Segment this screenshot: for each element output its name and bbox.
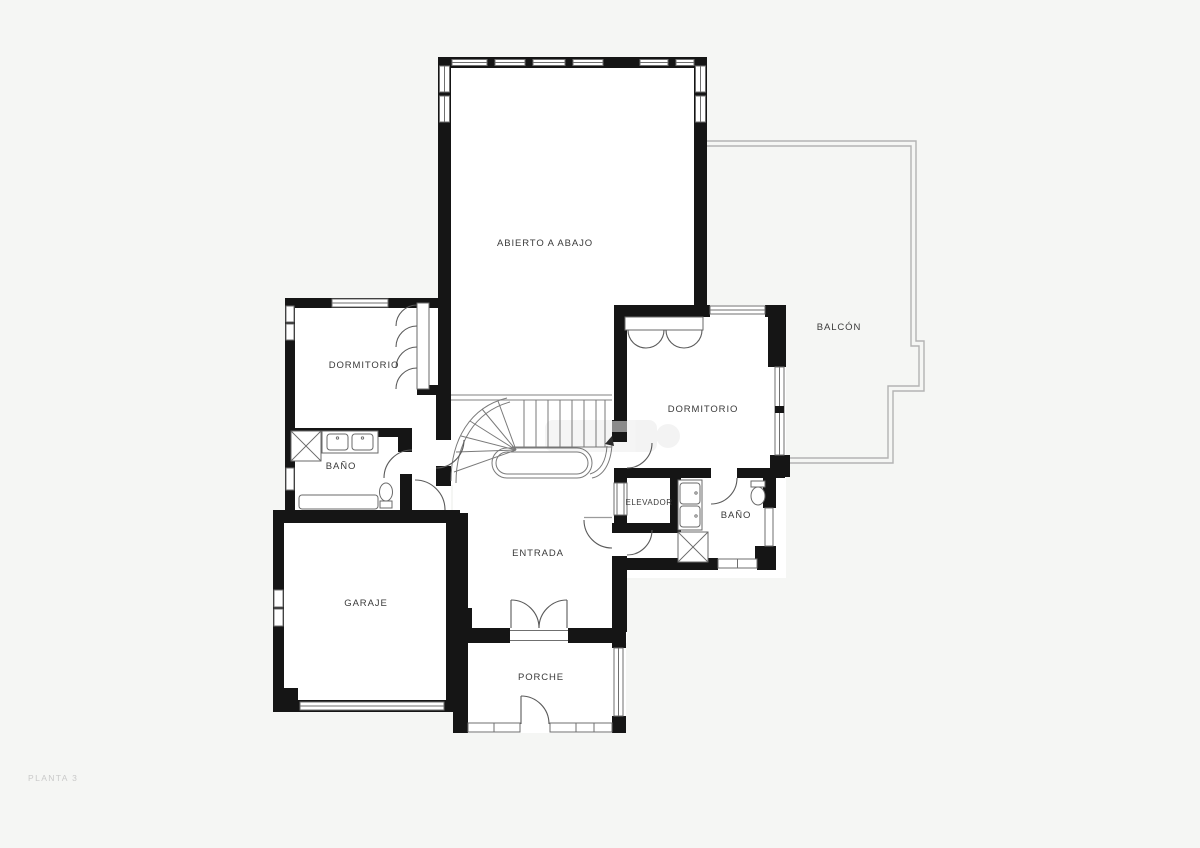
room-label-abierto-a-abajo: ABIERTO A ABAJO — [497, 238, 593, 249]
floor-plan-canvas: ABIERTO A ABAJO BALCÓN DORMITORIO DORMIT… — [0, 0, 1200, 848]
floor-label: PLANTA 3 — [28, 773, 78, 783]
floor-plan-page: ABIERTO A ABAJO BALCÓN DORMITORIO DORMIT… — [0, 0, 1200, 848]
room-label-balcon: BALCÓN — [817, 322, 861, 333]
room-label-porche: PORCHE — [518, 672, 564, 683]
room-label-bano-1: BAÑO — [326, 461, 357, 472]
room-label-bano-2: BAÑO — [721, 510, 752, 521]
toilet-2 — [751, 481, 765, 505]
room-label-elevador: ELEVADOR — [626, 498, 673, 507]
room-label-dormitorio-1: DORMITORIO — [329, 360, 400, 371]
room-label-garaje: GARAJE — [344, 598, 387, 609]
room-label-entrada: ENTRADA — [512, 548, 564, 559]
bathtub-1 — [299, 495, 378, 509]
room-label-dormitorio-2: DORMITORIO — [668, 404, 739, 415]
shower-tray-2 — [678, 532, 708, 562]
double-sink-1 — [322, 431, 378, 453]
toilet-1 — [380, 483, 393, 508]
shower-tray-1 — [291, 431, 321, 461]
watermark-wall-band — [612, 421, 627, 432]
double-sink-2 — [678, 480, 702, 530]
